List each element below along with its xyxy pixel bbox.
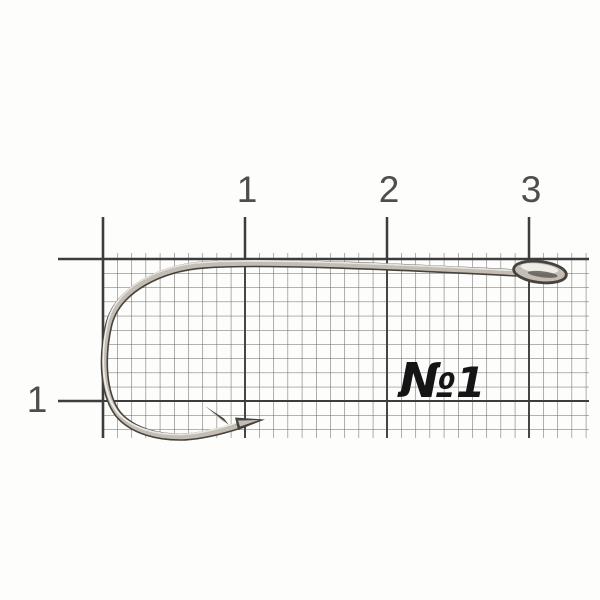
- size-label: № 1: [397, 353, 485, 409]
- ruler-label-top-1: 1: [237, 169, 258, 210]
- ruler-label-top-3: 3: [521, 169, 542, 210]
- grid-mm-cells: [103, 259, 589, 438]
- fish-hook-on-graph-paper: 1 2 3 1: [0, 0, 600, 600]
- ruler-label-top-2: 2: [379, 169, 400, 210]
- product-photo: 1 2 3 1: [0, 0, 600, 600]
- size-label-prefix: №: [397, 353, 457, 409]
- ruler-label-left-1: 1: [27, 379, 48, 420]
- size-label-number: 1: [456, 358, 485, 407]
